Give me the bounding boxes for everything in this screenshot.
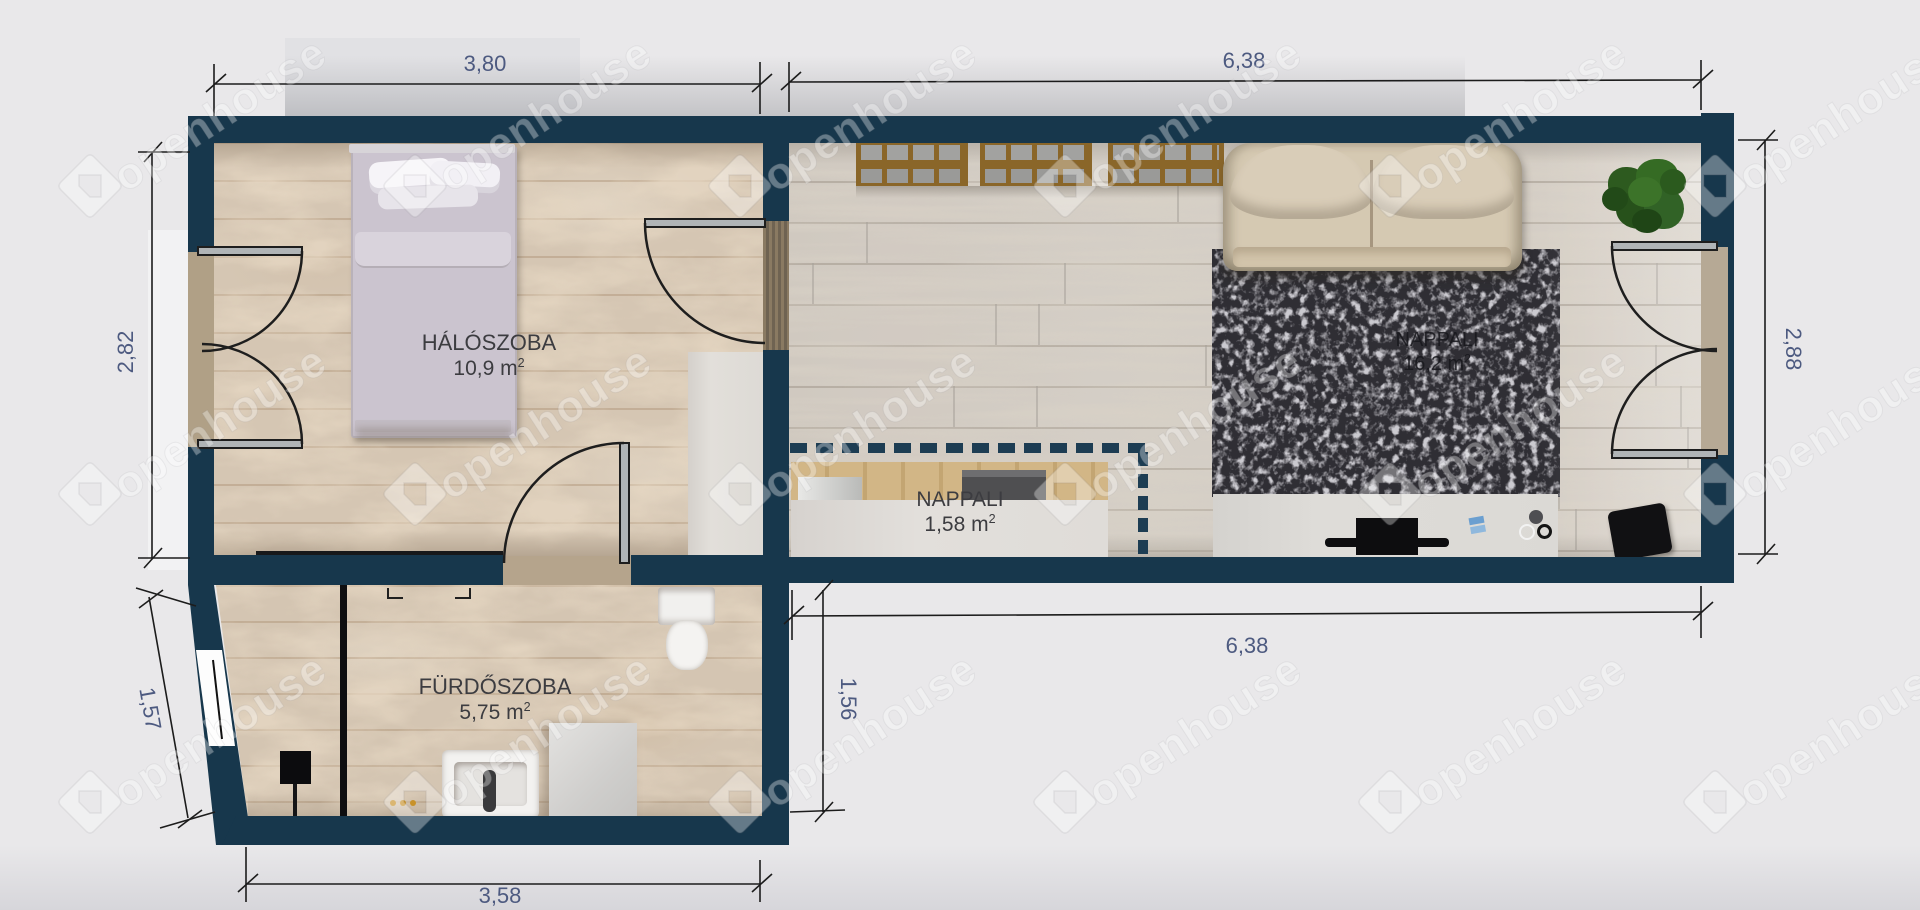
svg-text:2,88: 2,88 (1781, 328, 1806, 371)
svg-text:6,38: 6,38 (1223, 48, 1266, 73)
svg-text:3,80: 3,80 (464, 51, 507, 76)
svg-text:1,56: 1,56 (836, 678, 861, 721)
svg-text:6,38: 6,38 (1226, 633, 1269, 658)
svg-text:3,58: 3,58 (479, 883, 522, 908)
svg-text:2,82: 2,82 (113, 331, 138, 374)
svg-text:1,57: 1,57 (134, 685, 166, 732)
